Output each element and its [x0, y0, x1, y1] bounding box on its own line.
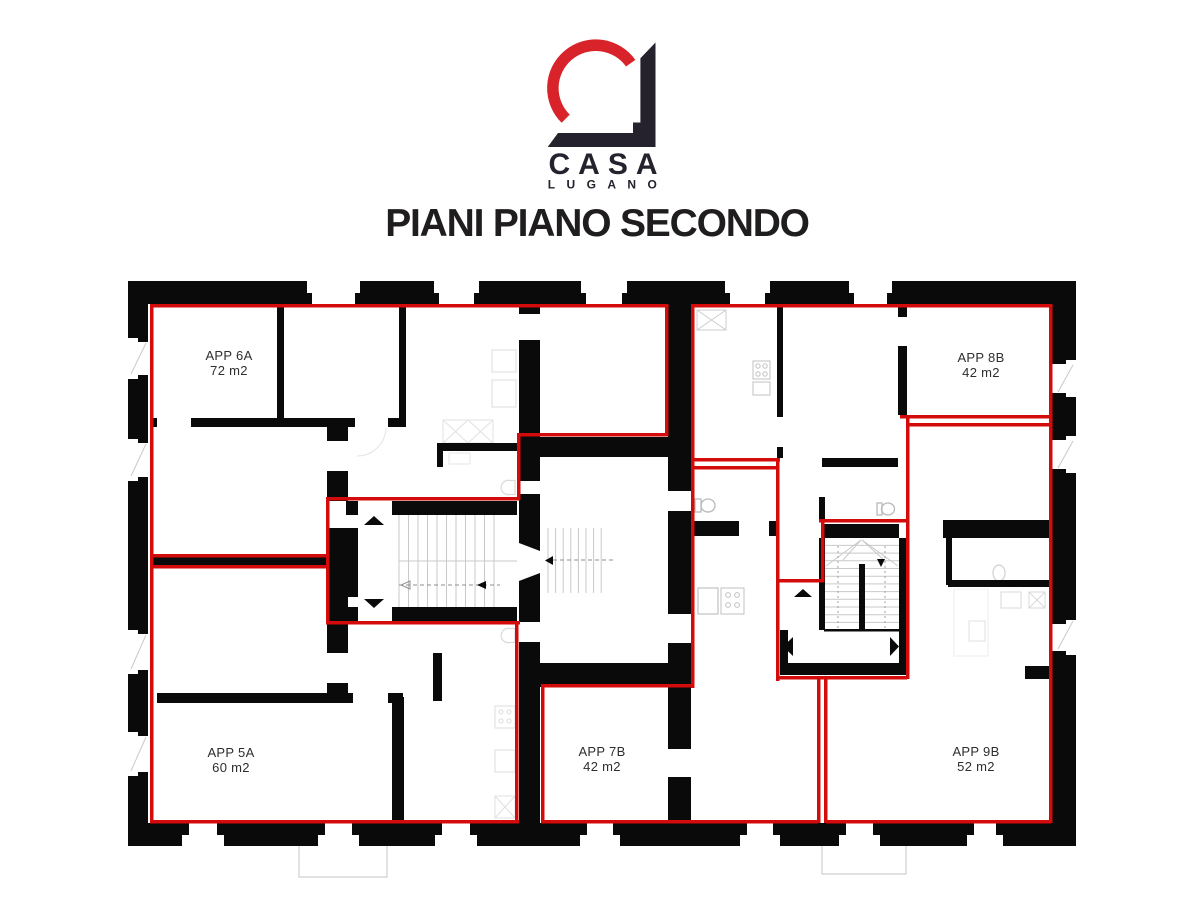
svg-text:72 m2: 72 m2 [210, 363, 248, 378]
svg-text:APP 9B: APP 9B [952, 744, 999, 759]
svg-text:APP 8B: APP 8B [957, 350, 1004, 365]
svg-text:60 m2: 60 m2 [212, 760, 250, 775]
svg-text:52 m2: 52 m2 [957, 759, 995, 774]
svg-text:APP 6A: APP 6A [205, 348, 252, 363]
svg-text:CASA: CASA [548, 148, 665, 181]
svg-text:LUGANO: LUGANO [548, 178, 668, 192]
svg-text:APP 5A: APP 5A [207, 745, 254, 760]
svg-text:PIANI PIANO SECONDO: PIANI PIANO SECONDO [385, 202, 809, 245]
svg-text:42 m2: 42 m2 [962, 365, 1000, 380]
svg-text:APP 7B: APP 7B [578, 744, 625, 759]
svg-text:42 m2: 42 m2 [583, 759, 621, 774]
